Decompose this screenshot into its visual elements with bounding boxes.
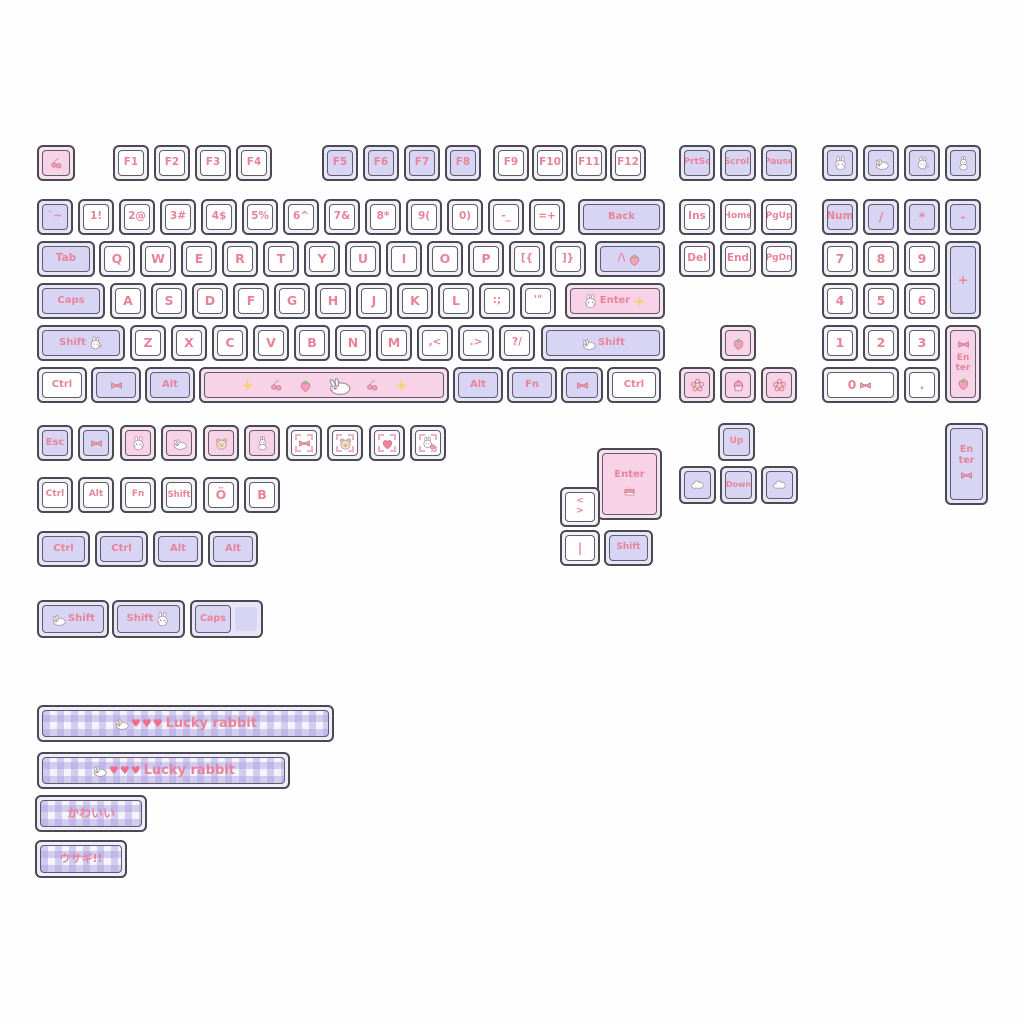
key-prtsc-face: PrtSc — [684, 150, 710, 176]
key-c-label: C — [225, 336, 234, 349]
key-esc-novelty-face — [42, 150, 70, 176]
key-esc-extra: Esc — [37, 425, 73, 461]
key-4-label: 4$ — [212, 211, 227, 222]
key-alt-wide-2-face: Alt — [213, 536, 253, 562]
key-f4: F4 — [236, 145, 272, 181]
spacebar-lucky-rabbit-7u-face: ♥♥♥Lucky rabbit — [42, 710, 329, 737]
key-left-cloud — [679, 466, 716, 504]
key-f12: F12 — [610, 145, 646, 181]
key-quote-face: '" — [525, 288, 551, 314]
key-t-face: T — [268, 246, 294, 272]
key-v-label: V — [266, 336, 276, 349]
key-lwin-bow-face — [96, 372, 136, 398]
key-l-face: L — [443, 288, 469, 314]
key-prtsc: PrtSc — [679, 145, 715, 181]
key-home: Home — [720, 199, 756, 235]
key-s-face: S — [156, 288, 182, 314]
key-np-4: 4 — [822, 283, 858, 319]
key-caps: Caps — [37, 283, 105, 319]
spacebar-lucky-rabbit-7u-label: Lucky rabbit — [166, 717, 257, 731]
key-i-face: I — [391, 246, 417, 272]
key-x-face: X — [176, 330, 202, 356]
key-f4-label: F4 — [247, 157, 261, 168]
key-3-face: 3# — [165, 204, 191, 230]
strawberry-icon — [298, 378, 313, 393]
key-np-slash-label: / — [879, 210, 884, 223]
key-end-label: End — [727, 253, 749, 264]
key-s: S — [151, 283, 187, 319]
key-1: 1! — [78, 199, 114, 235]
key-k-face: K — [402, 288, 428, 314]
bow-icon — [858, 378, 873, 393]
bunny-face-icon — [583, 294, 598, 309]
key-equals-face: =+ — [534, 204, 560, 230]
key-framed-bow-face — [291, 430, 317, 456]
key-np-7: 7 — [822, 241, 858, 277]
key-i-label: I — [402, 252, 407, 265]
key-clock-o: Ö — [203, 477, 239, 513]
key-l: L — [438, 283, 474, 319]
key-9-face: 9( — [411, 204, 437, 230]
spacebar-usagi-label: ウサギ!! — [59, 853, 102, 865]
key-comma: ,< — [417, 325, 453, 361]
flower-bear-icon — [690, 378, 705, 393]
key-shift-wide-1-label: Shift — [68, 614, 95, 625]
key-np-4-face: 4 — [827, 288, 853, 314]
key-lshift: Shift — [37, 325, 125, 361]
hearts-decor: ♥♥♥ — [109, 764, 142, 777]
key-t-label: T — [277, 252, 286, 265]
key-left-cloud-face — [684, 471, 711, 499]
key-lwin-bow — [91, 367, 141, 403]
key-np-6: 6 — [904, 283, 940, 319]
key-f3: F3 — [195, 145, 231, 181]
key-w-label: W — [151, 252, 165, 265]
key-o-label: O — [440, 252, 451, 265]
key-b: B — [294, 325, 330, 361]
key-8: 8* — [365, 199, 401, 235]
spacebar-kawaii: かわいい — [35, 795, 147, 832]
key-backspace: Back — [578, 199, 665, 235]
key-caps-stepped: Caps — [190, 600, 263, 638]
keycap-set-image: F1F2F3F4F5F6F7F8F9F10F11F12PrtScScrollPa… — [0, 0, 1024, 1024]
key-np-6-label: 6 — [918, 294, 927, 307]
key-space-face — [204, 372, 444, 398]
key-fn: Fn — [507, 367, 557, 403]
key-enter-face: Enter — [570, 288, 660, 314]
key-h-face: H — [320, 288, 346, 314]
key-lshift-face: Shift — [42, 330, 120, 356]
key-f12-label: F12 — [617, 157, 639, 168]
key-ctrl-wide-2: Ctrl — [95, 531, 148, 567]
key-f7-label: F7 — [415, 157, 429, 168]
key-shift-wide-1: Shift — [37, 600, 109, 638]
key-h-label: H — [328, 294, 338, 307]
key-f5-label: F5 — [333, 157, 347, 168]
key-b-novelty: B — [244, 477, 280, 513]
bunny-sleeping-icon — [114, 716, 129, 731]
key-np-star-label: * — [919, 210, 926, 223]
key-rshift-label: Shift — [598, 338, 625, 349]
key-framed-heart-face — [374, 430, 400, 456]
key-novelty-flower-bear-1-face — [684, 372, 710, 398]
key-pgdn-face: PgDn — [766, 246, 792, 272]
key-fn-extra: Fn — [120, 477, 156, 513]
key-rbracket: ]} — [550, 241, 586, 277]
key-tab: Tab — [37, 241, 95, 277]
key-q-label: Q — [112, 252, 123, 265]
key-f-label: F — [247, 294, 256, 307]
key-k: K — [397, 283, 433, 319]
key-novelty-bunny-2 — [863, 145, 899, 181]
key-lt-gt: < > — [560, 487, 600, 527]
key-x-label: X — [184, 336, 194, 349]
key-ctrl-wide-1-face: Ctrl — [42, 536, 85, 562]
berries-icon — [269, 378, 284, 393]
key-novelty-strawberry — [720, 325, 756, 361]
key-pause: Pause — [761, 145, 797, 181]
key-9: 9( — [406, 199, 442, 235]
key-novelty-bunny-3-face — [909, 150, 935, 176]
sparkle-icon — [240, 378, 255, 393]
key-np-minus: - — [945, 199, 981, 235]
key-f6-face: F6 — [368, 150, 394, 176]
key-end-face: End — [725, 246, 751, 272]
key-5-label: 5% — [251, 211, 269, 222]
bow-icon — [956, 337, 971, 352]
key-j-face: J — [361, 288, 387, 314]
key-shift-small-label: Shift — [616, 543, 640, 553]
key-8-face: 8* — [370, 204, 396, 230]
bow-icon — [89, 436, 104, 451]
key-rshift: Shift — [541, 325, 665, 361]
bunny-sleeping-icon — [172, 436, 187, 451]
key-np-minus-face: - — [950, 204, 976, 230]
key-ctrl-extra: Ctrl — [37, 477, 73, 513]
key-down-face: Down — [725, 471, 752, 499]
key-clock-o-face: Ö — [208, 482, 234, 508]
key-lalt: Alt — [145, 367, 195, 403]
key-framed-bunny-berry-face — [415, 430, 441, 456]
key-ctrl-wide-2-face: Ctrl — [100, 536, 143, 562]
key-b-novelty-label: B — [257, 488, 267, 501]
bow-icon — [575, 378, 590, 393]
key-a-label: A — [123, 294, 133, 307]
key-np-plus-label: + — [958, 273, 968, 286]
key-f6-label: F6 — [374, 157, 388, 168]
key-novelty-bunny-4 — [945, 145, 981, 181]
key-lctrl: Ctrl — [37, 367, 87, 403]
key-framed-bunny-berry — [410, 425, 446, 461]
key-end: End — [720, 241, 756, 277]
key-framed-bear — [327, 425, 363, 461]
key-iso-enter-face: Enter — [602, 453, 657, 515]
key-novelty-rabbit-pink-3 — [244, 425, 280, 461]
key-rctrl-label: Ctrl — [624, 380, 644, 391]
key-iso-enter-label: Enter — [614, 470, 644, 481]
key-lt-gt-face: < > — [565, 492, 595, 522]
key-alt-wide-2: Alt — [208, 531, 258, 567]
spacebar-kawaii-face: かわいい — [40, 800, 142, 827]
key-np-enter-label: En ter — [956, 354, 971, 373]
key-f3-label: F3 — [206, 157, 220, 168]
key-np-7-face: 7 — [827, 246, 853, 272]
key-ctrl-extra-label: Ctrl — [46, 490, 64, 500]
key-backspace-label: Back — [608, 212, 635, 223]
key-6-label: 6^ — [293, 211, 309, 222]
key-prtsc-label: PrtSc — [684, 158, 710, 168]
key-grave-label: `~ — [48, 211, 62, 222]
key-period-label: .> — [470, 337, 483, 348]
key-f4-face: F4 — [241, 150, 267, 176]
key-enter-tall-label: En ter — [959, 445, 975, 465]
key-d-label: D — [205, 294, 215, 307]
key-t: T — [263, 241, 299, 277]
key-lshift-label: Shift — [59, 338, 86, 349]
key-novelty-bunny-1-face — [827, 150, 853, 176]
key-np-enter-face: En ter — [950, 330, 976, 398]
key-quote-label: '" — [534, 295, 543, 306]
key-novelty-bunny-4-face — [950, 150, 976, 176]
key-home-label: Home — [725, 212, 751, 222]
key-np-star-face: * — [909, 204, 935, 230]
key-np-0-face: 0 — [827, 372, 894, 398]
key-enter-tall-face: En ter — [950, 428, 983, 500]
key-pgdn-label: PgDn — [766, 254, 792, 264]
key-1-face: 1! — [83, 204, 109, 230]
key-f1: F1 — [113, 145, 149, 181]
bunny-sleeping-icon — [874, 156, 889, 171]
key-caps-label: Caps — [57, 296, 84, 307]
key-y-label: Y — [317, 252, 326, 265]
key-quote: '" — [520, 283, 556, 319]
key-equals: =+ — [529, 199, 565, 235]
key-bow-extra-face — [83, 430, 109, 456]
strawberry-icon — [956, 376, 971, 391]
bunny-sit-icon — [255, 436, 270, 451]
key-np-9-label: 9 — [918, 252, 927, 265]
key-b-novelty-face: B — [249, 482, 275, 508]
spacebar-lucky-rabbit-6u-face: ♥♥♥Lucky rabbit — [42, 757, 285, 784]
key-shift-wide-2-label: Shift — [127, 614, 154, 625]
key-np-1-label: 1 — [836, 336, 845, 349]
key-a: A — [110, 283, 146, 319]
key-h: H — [315, 283, 351, 319]
key-framed-heart — [369, 425, 405, 461]
key-backslash: /\ — [595, 241, 665, 277]
key-del: Del — [679, 241, 715, 277]
key-d: D — [192, 283, 228, 319]
key-np-3: 3 — [904, 325, 940, 361]
key-np-6-face: 6 — [909, 288, 935, 314]
key-pgup: PgUp — [761, 199, 797, 235]
bow-icon — [959, 468, 974, 483]
key-np-minus-label: - — [960, 210, 965, 223]
key-u-face: U — [350, 246, 376, 272]
cloud-icon — [690, 478, 705, 493]
key-novelty-flower-bear-2-face — [766, 372, 792, 398]
key-caps-face: Caps — [42, 288, 100, 314]
key-b-face: B — [299, 330, 325, 356]
key-fn-label: Fn — [525, 380, 539, 391]
berries-icon — [365, 378, 380, 393]
bunny-wave-icon — [915, 156, 930, 171]
key-np-5: 5 — [863, 283, 899, 319]
cupcake-icon — [731, 378, 746, 393]
key-slash-face: ?/ — [504, 330, 530, 356]
key-pipe: | — [560, 530, 600, 566]
key-p: P — [468, 241, 504, 277]
key-up-face: Up — [723, 428, 750, 456]
key-up-label: Up — [730, 437, 744, 447]
key-np-dot-face: . — [909, 372, 935, 398]
key-novelty-rabbit-pink-2-face — [166, 430, 192, 456]
cake-icon — [622, 483, 637, 498]
key-shift-extra-label: Shift — [168, 491, 191, 500]
key-i: I — [386, 241, 422, 277]
key-z-label: Z — [143, 336, 152, 349]
key-alt-extra-face: Alt — [83, 482, 109, 508]
key-f7-face: F7 — [409, 150, 435, 176]
key-ctrl-extra-face: Ctrl — [42, 482, 68, 508]
bow-icon — [109, 378, 124, 393]
key-ctrl-wide-2-label: Ctrl — [111, 544, 131, 555]
key-f6: F6 — [363, 145, 399, 181]
spacebar-lucky-rabbit-6u-label: Lucky rabbit — [144, 764, 235, 778]
key-np-dot: . — [904, 367, 940, 403]
key-f5-face: F5 — [327, 150, 353, 176]
key-novelty-flower-bear-1 — [679, 367, 715, 403]
key-lbracket: [{ — [509, 241, 545, 277]
key-lctrl-label: Ctrl — [52, 380, 72, 391]
key-alt-wide-1: Alt — [153, 531, 203, 567]
key-ralt: Alt — [453, 367, 503, 403]
key-shift-extra-face: Shift — [166, 482, 192, 508]
spacebar-usagi: ウサギ!! — [35, 840, 127, 878]
key-np-4-label: 4 — [836, 294, 845, 307]
key-caps-stepped-face: Caps — [195, 605, 231, 633]
key-backspace-face: Back — [583, 204, 660, 230]
key-pipe-label: | — [578, 541, 583, 554]
key-np-dot-label: . — [920, 378, 925, 391]
key-f9-face: F9 — [498, 150, 524, 176]
key-np-5-label: 5 — [877, 294, 886, 307]
key-p-face: P — [473, 246, 499, 272]
key-f3-face: F3 — [200, 150, 226, 176]
key-caps-stepped-label: Caps — [200, 614, 226, 624]
key-z-face: Z — [135, 330, 161, 356]
key-pause-label: Pause — [766, 158, 792, 168]
sparkle-icon — [394, 378, 409, 393]
bear-face-icon — [214, 436, 229, 451]
key-esc-extra-label: Esc — [46, 438, 65, 449]
key-minus: -_ — [488, 199, 524, 235]
key-del-label: Del — [687, 253, 706, 264]
key-np-1-face: 1 — [827, 330, 853, 356]
key-up: Up — [718, 423, 755, 461]
key-f12-face: F12 — [615, 150, 641, 176]
key-o-face: O — [432, 246, 458, 272]
key-enter-tall: En ter — [945, 423, 988, 505]
bunny-sleeping-icon — [92, 763, 107, 778]
key-rctrl-face: Ctrl — [612, 372, 656, 398]
key-novelty-bunny-2-face — [868, 150, 894, 176]
key-rbracket-label: ]} — [562, 253, 574, 264]
key-down: Down — [720, 466, 757, 504]
key-n-face: N — [340, 330, 366, 356]
key-fn-face: Fn — [512, 372, 552, 398]
key-numlock-face: Num — [827, 204, 853, 230]
key-j-label: J — [372, 294, 377, 307]
key-c: C — [212, 325, 248, 361]
key-alt-extra-label: Alt — [89, 490, 103, 500]
key-rwin-bow — [561, 367, 603, 403]
cloud-icon — [772, 478, 787, 493]
key-f7: F7 — [404, 145, 440, 181]
key-3: 3# — [160, 199, 196, 235]
key-f10-label: F10 — [539, 157, 561, 168]
key-9-label: 9( — [418, 211, 430, 222]
strawberry-icon — [731, 336, 746, 351]
key-shift-wide-2-face: Shift — [117, 605, 180, 633]
key-s-label: S — [164, 294, 173, 307]
key-5: 5% — [242, 199, 278, 235]
key-shift-extra: Shift — [161, 477, 197, 513]
key-f10-face: F10 — [537, 150, 563, 176]
key-q: Q — [99, 241, 135, 277]
key-lctrl-face: Ctrl — [42, 372, 82, 398]
key-f8: F8 — [445, 145, 481, 181]
key-np-2-label: 2 — [877, 336, 886, 349]
key-np-5-face: 5 — [868, 288, 894, 314]
key-g-face: G — [279, 288, 305, 314]
key-f2: F2 — [154, 145, 190, 181]
key-scroll-face: Scroll — [725, 150, 751, 176]
key-pgup-label: PgUp — [766, 212, 792, 222]
bunny-berry-icon — [421, 436, 436, 451]
key-f2-face: F2 — [159, 150, 185, 176]
key-6: 6^ — [283, 199, 319, 235]
key-7-face: 7& — [329, 204, 355, 230]
key-pgup-face: PgUp — [766, 204, 792, 230]
key-f11-label: F11 — [578, 157, 600, 168]
strawberry-icon — [627, 252, 642, 267]
key-alt-wide-2-label: Alt — [225, 544, 241, 555]
key-np-enter: En ter — [945, 325, 981, 403]
key-f: F — [233, 283, 269, 319]
key-np-1: 1 — [822, 325, 858, 361]
key-o: O — [427, 241, 463, 277]
key-down-label: Down — [726, 481, 751, 489]
key-np-slash-face: / — [868, 204, 894, 230]
key-u-label: U — [358, 252, 368, 265]
hearts-decor: ♥♥♥ — [131, 717, 164, 730]
key-u: U — [345, 241, 381, 277]
key-shift-wide-1-face: Shift — [42, 605, 104, 633]
key-minus-label: -_ — [501, 211, 511, 222]
key-novelty-rabbit-pink-1-face — [125, 430, 151, 456]
key-np-star: * — [904, 199, 940, 235]
key-4-face: 4$ — [206, 204, 232, 230]
key-e: E — [181, 241, 217, 277]
key-ctrl-wide-1: Ctrl — [37, 531, 90, 567]
key-m-face: M — [381, 330, 407, 356]
bear-face-icon — [338, 436, 353, 451]
key-6-face: 6^ — [288, 204, 314, 230]
key-np-3-face: 3 — [909, 330, 935, 356]
berries-icon — [49, 156, 64, 171]
key-np-0: 0 — [822, 367, 899, 403]
